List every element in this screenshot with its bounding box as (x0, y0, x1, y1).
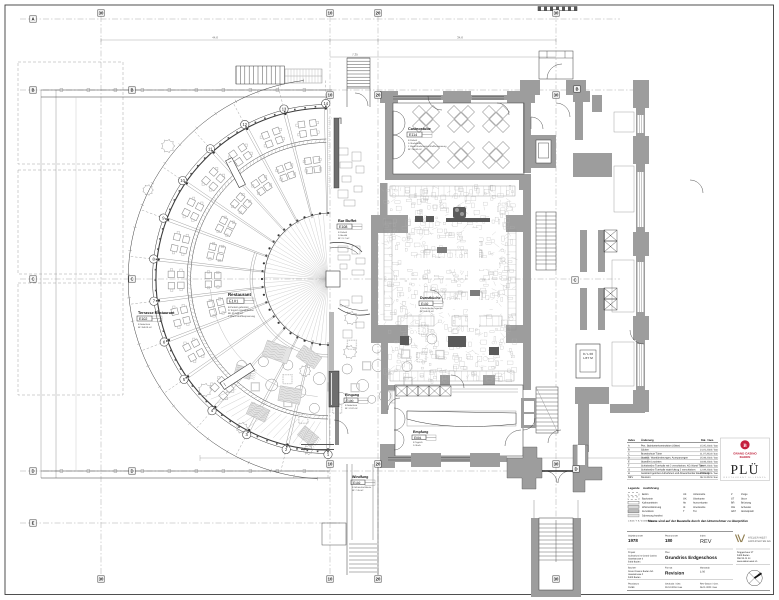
svg-text:BF 414.86 m2: BF 414.86 m2 (228, 312, 244, 315)
svg-text:F Wand Stoffbespannung: F Wand Stoffbespannung (228, 315, 256, 318)
svg-text:E132: E132 (421, 302, 429, 306)
svg-text:H: H (628, 472, 630, 475)
svg-text:21.01.2023 / bas: 21.01.2023 / bas (700, 449, 719, 452)
svg-text:10469: 10469 (628, 586, 635, 589)
svg-text:10: 10 (328, 93, 333, 98)
svg-text:REV: REV (628, 476, 633, 479)
svg-text:Pos. Stahlunterkonstruktion (G: Pos. Stahlunterkonstruktion (Gitter) (641, 445, 680, 448)
svg-text:B Schmutzschleuse: B Schmutzschleuse (352, 486, 372, 489)
svg-text:D Akustik: D Akustik (338, 234, 348, 237)
svg-text:D Stuckdecke: D Stuckdecke (408, 142, 422, 145)
svg-text:20: 20 (376, 11, 381, 16)
svg-text:5400 Baden: 5400 Baden (628, 560, 641, 563)
svg-text:15.05.2023 / bas: 15.05.2023 / bas (700, 445, 719, 448)
svg-text:1:50: 1:50 (700, 571, 706, 574)
svg-text:11.07.2023 / bas: 11.07.2023 / bas (700, 453, 718, 456)
svg-text:Kunststein: Kunststein (642, 510, 654, 513)
svg-text:20: 20 (376, 577, 381, 582)
svg-text:APZ: APZ (731, 510, 736, 513)
svg-text:Index: Index (700, 535, 706, 538)
svg-text:Restaurant: Restaurant (228, 292, 251, 297)
svg-text:44.6: 44.6 (212, 36, 218, 40)
svg-text:REV: REV (700, 539, 712, 545)
svg-text:D Stuck: D Stuck (413, 444, 422, 447)
svg-text:30: 30 (99, 11, 104, 16)
svg-text:BF 118.80 m2: BF 118.80 m2 (408, 148, 422, 151)
svg-text:Eingang: Eingang (345, 393, 359, 397)
svg-text:Haselstrasse 2: Haselstrasse 2 (628, 557, 644, 560)
svg-text:Culinarium im Grand Casino: Culinarium im Grand Casino (628, 554, 658, 557)
svg-text:E102: E102 (139, 317, 147, 321)
svg-text:D: D (574, 467, 577, 472)
svg-text:Beton: Beton (642, 493, 649, 496)
svg-text:5400 Baden: 5400 Baden (737, 554, 750, 557)
svg-text:14: 14 (324, 101, 329, 106)
svg-text:B: B (130, 88, 133, 93)
svg-text:E001: E001 (414, 436, 422, 440)
svg-text:E108: E108 (339, 225, 347, 229)
svg-text:30: 30 (99, 577, 104, 582)
svg-text:BR: BR (731, 502, 735, 505)
svg-text:27.09.2023 / bas: 27.09.2023 / bas (700, 472, 719, 475)
svg-text:30.10.2018 / bas: 30.10.2018 / bas (665, 586, 683, 589)
svg-text:25.08.2023 / bas: 25.08.2023 / bas (700, 456, 719, 459)
svg-text:ST: ST (731, 497, 735, 500)
svg-text:10: 10 (328, 462, 333, 467)
svg-text:B Bodenbelag fugenlos: B Bodenbelag fugenlos (420, 307, 444, 310)
svg-text:Standort Leuchten: Standort Leuchten (641, 460, 662, 463)
svg-text:Dunstküche: Dunstküche (420, 296, 441, 300)
svg-text:Schwelle: Schwelle (741, 506, 752, 509)
svg-text:Windfang: Windfang (352, 475, 368, 479)
svg-text:B Parkett: B Parkett (338, 231, 347, 234)
svg-text:OK: OK (683, 497, 687, 500)
svg-text:Index: Index (628, 439, 636, 442)
svg-text:Zarge: Zarge (741, 493, 748, 496)
svg-text:Kalksandstein: Kalksandstein (642, 502, 658, 505)
svg-text:Bauherr: Bauherr (628, 567, 636, 570)
svg-text:BF 21.7 m2: BF 21.7 m2 (338, 237, 350, 240)
svg-text:13: 13 (282, 107, 287, 112)
svg-text:Schiebetüre Turnhalle statt Au: Schiebetüre Turnhalle statt Aufzug 2 ver… (641, 468, 696, 471)
svg-text:06.11.2023 / bas: 06.11.2023 / bas (700, 586, 718, 589)
svg-text:30: 30 (554, 11, 559, 16)
svg-text:12.09.2023 / bas: 12.09.2023 / bas (700, 468, 719, 471)
svg-text:Dat. / Gez.: Dat. / Gez. (701, 439, 714, 442)
svg-text:Abstellplatz: Abstellplatz (741, 510, 755, 513)
svg-text:Sturz: Sturz (741, 497, 748, 500)
svg-text:180: 180 (665, 538, 673, 543)
svg-text:29.09.2023 / bas: 29.09.2023 / bas (700, 464, 719, 467)
svg-text:Revision: Revision (665, 571, 684, 576)
svg-text:1978: 1978 (628, 538, 638, 543)
svg-text:Casinostube: Casinostube (408, 127, 431, 131)
svg-text:Dämmung frostfrei: Dämmung frostfrei (642, 515, 663, 518)
svg-text:Grundriss Erdgeschoss: Grundriss Erdgeschoss (665, 555, 718, 560)
svg-text:20: 20 (376, 93, 381, 98)
svg-text:Projekt: Projekt (628, 551, 636, 554)
svg-text:Legende: Legende (628, 486, 640, 490)
svg-text:BF 12.97 m2: BF 12.97 m2 (345, 407, 358, 410)
svg-text:Grand Casino Baden AG: Grand Casino Baden AG (628, 570, 653, 573)
svg-text:B Teppich: B Teppich (413, 441, 423, 444)
svg-text:BF 350.00 m2: BF 350.00 m2 (138, 326, 153, 329)
svg-text:30: 30 (554, 462, 559, 467)
svg-text:Unterkante: Unterkante (693, 493, 706, 496)
svg-text:Rev-Datum / Gez.: Rev-Datum / Gez. (700, 583, 719, 586)
svg-text:18.08.2023 / bas: 18.08.2023 / bas (700, 460, 719, 463)
svg-text:Masse sind auf der Baustelle d: Masse sind auf der Baustelle durch den U… (648, 519, 748, 523)
svg-text:RESTAURANT ALLEANZA: RESTAURANT ALLEANZA (723, 476, 766, 479)
svg-text:Wärmedämmung: Wärmedämmung (642, 506, 662, 509)
svg-text:PLÜ: PLÜ (730, 462, 759, 477)
svg-text:Haselstrasse 2: Haselstrasse 2 (628, 573, 644, 576)
svg-text:B: B (575, 87, 578, 92)
svg-text:06.11.2023 / bas: 06.11.2023 / bas (700, 476, 718, 479)
svg-text:Bar Buffet: Bar Buffet (338, 219, 357, 223)
svg-text:Tür: Tür (693, 510, 697, 513)
svg-text:BF 160.00 m2: BF 160.00 m2 (420, 310, 435, 313)
svg-text:A: A (31, 17, 34, 22)
svg-text:Backstein: Backstein (642, 497, 653, 500)
svg-text:E114: E114 (409, 133, 417, 137)
svg-text:UK: UK (683, 493, 687, 496)
svg-text:20: 20 (376, 462, 381, 467)
svg-text:10: 10 (328, 577, 333, 582)
svg-text:5400 Baden: 5400 Baden (628, 576, 641, 579)
svg-text:D: D (31, 469, 34, 474)
svg-text:E101: E101 (229, 298, 239, 303)
svg-text:10: 10 (328, 11, 333, 16)
svg-text:Doggenhaus 37: Doggenhaus 37 (737, 551, 754, 554)
svg-text:056 55 44 44: 056 55 44 44 (737, 557, 751, 560)
svg-text:7.35: 7.35 (352, 53, 358, 57)
svg-text:F Wand Stuckmarmor/Stoffbesp: F Wand Stuckmarmor/Stoffbespannung (408, 145, 447, 148)
svg-text:SW: SW (731, 506, 736, 509)
svg-text:30: 30 (554, 577, 559, 582)
svg-text:Gedruckt / Gez.: Gedruckt / Gez. (665, 583, 681, 586)
svg-text:Ausführung: Ausführung (643, 486, 659, 490)
svg-text:IK: IK (683, 506, 686, 509)
svg-text:C: C (31, 277, 34, 282)
svg-text:E: E (32, 521, 35, 526)
svg-text:Terrasse Restaurant: Terrasse Restaurant (138, 311, 175, 315)
svg-text:Innenkante: Innenkante (693, 506, 706, 509)
svg-text:D: D (130, 469, 133, 474)
svg-text:B Naturstein: B Naturstein (138, 323, 151, 326)
svg-text:Plandatum: Plandatum (628, 583, 639, 586)
svg-text:12: 12 (243, 122, 248, 127)
svg-text:Massstab: Massstab (700, 567, 711, 570)
svg-text:Revision: Revision (641, 476, 651, 479)
svg-text:30: 30 (554, 93, 559, 98)
svg-text:C: C (130, 277, 133, 282)
svg-text:Oberkante: Oberkante (693, 497, 705, 500)
svg-text:Brandschutz Türen: Brandschutz Türen (641, 453, 663, 456)
svg-text:E102: E102 (353, 481, 361, 485)
svg-text:D: D (628, 456, 630, 459)
svg-text:Empfang: Empfang (413, 430, 428, 434)
svg-text:Plan: Plan (665, 551, 670, 554)
svg-text:www.atelier-west.ch: www.atelier-west.ch (737, 560, 758, 563)
svg-text:Schiebetüre Turnhalle mit 2 ve: Schiebetüre Turnhalle mit 2 verschieben,… (641, 464, 704, 467)
svg-text:B: B (31, 88, 34, 93)
svg-text:Aussenkante: Aussenkante (693, 502, 708, 505)
svg-text:B Parkett: B Parkett (408, 139, 417, 142)
svg-text:BF 7.45 m2: BF 7.45 m2 (352, 489, 364, 492)
svg-text:C: C (628, 453, 630, 456)
svg-text:Säulen: Säulen (641, 449, 649, 452)
svg-text:Format: Format (665, 567, 673, 570)
svg-text:Statiker, Wandänderungen, Auss: Statiker, Wandänderungen, Aussparungen (641, 456, 688, 459)
svg-text:ARCHITEKTEN AG: ARCHITEKTEN AG (748, 540, 771, 543)
svg-text:Brüstung: Brüstung (741, 502, 752, 505)
svg-text:C: C (573, 278, 576, 283)
svg-text:B Naturstein: B Naturstein (345, 404, 358, 407)
svg-text:Änderung: Änderung (641, 438, 654, 442)
svg-text:E100: E100 (346, 399, 354, 403)
svg-text:BADEN: BADEN (740, 455, 751, 459)
svg-text:LIFT M: LIFT M (583, 356, 593, 360)
svg-text:G: G (628, 468, 630, 471)
svg-text:34.6: 34.6 (457, 36, 463, 40)
